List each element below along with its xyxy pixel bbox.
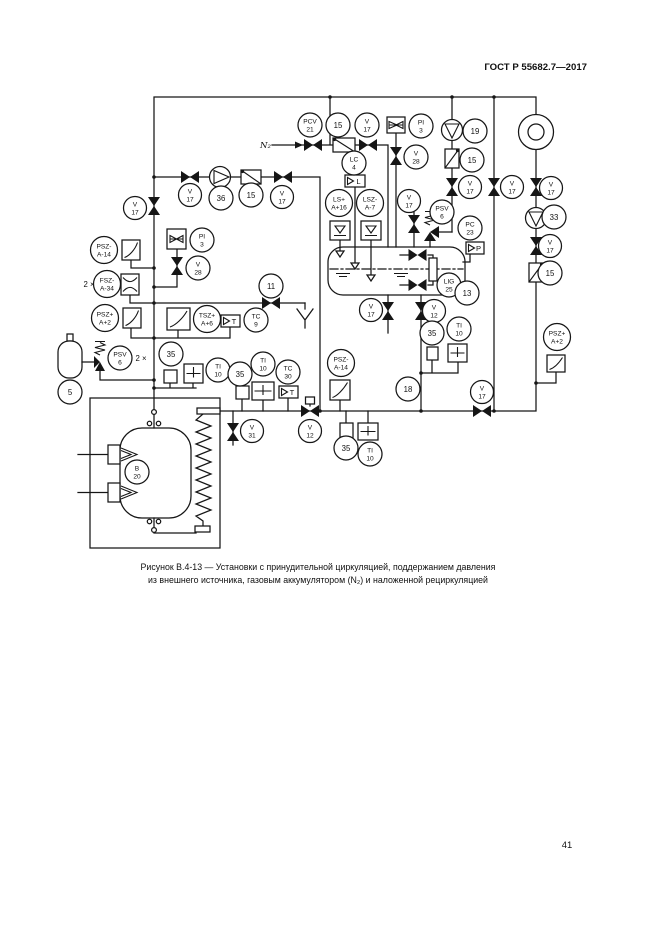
svg-text:9: 9 <box>254 322 258 329</box>
svg-text:TI: TI <box>367 448 373 455</box>
svg-text:PSZ-: PSZ- <box>96 244 111 251</box>
svg-text:V: V <box>407 195 412 202</box>
svg-text:17: 17 <box>363 127 371 134</box>
svg-text:V: V <box>432 305 437 312</box>
svg-text:28: 28 <box>194 270 202 277</box>
svg-text:15: 15 <box>247 191 256 200</box>
svg-text:11: 11 <box>267 282 275 291</box>
svg-text:PSZ+: PSZ+ <box>97 312 114 319</box>
bubble-v12-drain: V12 <box>423 300 446 323</box>
strainer-dot <box>333 138 336 141</box>
bubble-pcv-21: PCV21 <box>298 113 322 137</box>
bubble-psz-a2-left: PSZ+A+2 <box>92 305 119 332</box>
bubble-35-c: 35 <box>420 321 444 345</box>
valve-drum-vent-v17 <box>408 215 420 233</box>
bubble-v31: V31 <box>241 420 264 443</box>
svg-text:10: 10 <box>214 372 222 379</box>
bubble-pi-3-top: PI3 <box>409 114 433 138</box>
svg-text:28: 28 <box>412 159 420 166</box>
svg-text:V: V <box>308 425 313 432</box>
coil-bottom-header <box>195 526 210 532</box>
svg-text:5: 5 <box>68 388 73 397</box>
flange-bolt <box>147 519 151 523</box>
svg-text:V: V <box>188 189 193 196</box>
bubble-18: 18 <box>396 377 420 401</box>
valve-n2-inlet <box>304 139 322 151</box>
bubble-v17-left-riser: V17 <box>124 197 147 220</box>
bubble-v17-n2: V17 <box>355 113 379 137</box>
sensor-35-c <box>427 347 438 360</box>
bubble-v17-pump33: V17 <box>539 235 562 258</box>
n2-flow-arrow <box>295 142 303 149</box>
svg-text:17: 17 <box>186 197 194 204</box>
page-header: ГОСТ Р 55682.7—2017 <box>484 62 587 73</box>
page-number: 41 <box>562 839 572 850</box>
svg-text:13: 13 <box>463 289 472 298</box>
svg-text:17: 17 <box>508 189 516 196</box>
bubble-35-a: 35 <box>159 342 183 366</box>
bubble-lsz-a7: LSZ-A-7 <box>357 190 384 217</box>
svg-text:PSZ+: PSZ+ <box>549 331 566 338</box>
svg-text:36: 36 <box>217 194 226 203</box>
svg-text:PI: PI <box>199 234 205 241</box>
flange-bolt <box>156 519 160 523</box>
temp-display-letter: T <box>232 317 237 326</box>
svg-text:V: V <box>196 262 201 269</box>
valve-blowdown-11 <box>262 297 280 309</box>
heating-coil <box>196 414 211 526</box>
svg-text:V: V <box>414 151 419 158</box>
psv-drum-body <box>424 226 439 241</box>
svg-text:17: 17 <box>547 190 555 197</box>
svg-text:6: 6 <box>118 360 122 367</box>
valve-v28-top <box>390 147 402 165</box>
bubble-36: 36 <box>209 186 233 210</box>
sensor-35-a <box>164 370 177 383</box>
bubble-v17-right: V17 <box>540 177 563 200</box>
bubble-v28-left: V28 <box>186 256 210 280</box>
svg-text:17: 17 <box>466 189 474 196</box>
valve-v12-actuator <box>306 397 315 404</box>
bubble-5: 5 <box>58 380 82 404</box>
bubble-11: 11 <box>259 274 283 298</box>
svg-text:35: 35 <box>167 350 176 359</box>
bubble-v12-control: V12 <box>299 420 322 443</box>
coil-top-header <box>197 408 220 414</box>
valve-n2-outlet <box>359 139 377 151</box>
bubble-v17-branch1: V17 <box>179 184 202 207</box>
bubble-psv6-drum: PSV6 <box>430 200 454 224</box>
strainer-dot <box>456 149 459 152</box>
bubble-ti10-d: TI10 <box>358 442 382 466</box>
svg-text:17: 17 <box>367 312 375 319</box>
svg-text:PSV: PSV <box>435 206 449 213</box>
svg-text:21: 21 <box>306 127 314 134</box>
svg-text:17: 17 <box>278 199 286 206</box>
svg-text:3: 3 <box>419 128 423 135</box>
flange-joint <box>152 528 157 533</box>
valve-control-v12 <box>301 405 319 417</box>
svg-text:TC: TC <box>284 366 293 373</box>
bubble-15-feed: 15 <box>239 183 263 207</box>
svg-text:25: 25 <box>445 287 453 294</box>
valve-feed-branch-2 <box>274 171 292 183</box>
bubble-ti10-a: TI10 <box>206 358 230 382</box>
bubble-v17-mid: V17 <box>501 176 524 199</box>
level-gauge-glass <box>429 258 437 281</box>
svg-text:A-14: A-14 <box>334 365 348 372</box>
level-transmitter-1 <box>330 221 350 240</box>
bubble-tsz-a6: TSZ+A+6 <box>194 306 221 333</box>
svg-text:18: 18 <box>404 385 413 394</box>
bubble-33: 33 <box>542 205 566 229</box>
svg-text:23: 23 <box>466 230 474 237</box>
svg-text:A-7: A-7 <box>365 205 376 212</box>
bubble-ls-a16: LS+A+16 <box>326 190 353 217</box>
expansion-vessel-neck <box>67 334 73 341</box>
svg-text:V: V <box>250 425 255 432</box>
bubble-35-b: 35 <box>228 362 252 386</box>
svg-text:17: 17 <box>405 203 413 210</box>
bubble-v17-bottom: V17 <box>471 381 494 404</box>
strainer-dot <box>241 170 244 173</box>
sensor-35-b <box>236 386 249 399</box>
svg-text:3: 3 <box>200 242 204 249</box>
bubble-35-d: 35 <box>334 436 358 460</box>
bubble-psz-a14-left: PSZ-A-14 <box>91 237 118 264</box>
svg-text:20: 20 <box>133 474 141 481</box>
bubble-pc-23: PC23 <box>458 216 482 240</box>
svg-text:10: 10 <box>259 366 267 373</box>
svg-text:PSZ-: PSZ- <box>333 357 348 364</box>
bubble-fsz-a34: FSZ-A-34 <box>94 271 121 298</box>
level-transmitter-2 <box>361 221 381 240</box>
fsz-a34-element <box>121 274 139 295</box>
svg-text:A+2: A+2 <box>551 339 563 346</box>
bubble-tc-30: TC30 <box>276 360 300 384</box>
bubble-psz-a14-right: PSZ-A-14 <box>328 350 355 377</box>
svg-text:10: 10 <box>455 331 463 338</box>
svg-text:FSZ-: FSZ- <box>100 278 115 285</box>
svg-text:V: V <box>548 240 553 247</box>
psv-quantity-label: 2 × <box>135 354 147 363</box>
figure-caption-line1: Рисунок В.4-13 — Установки с принудитель… <box>141 562 496 572</box>
valve-left-riser-v17 <box>148 197 160 215</box>
bubble-13: 13 <box>455 281 479 305</box>
level-display-letter: L <box>356 177 360 186</box>
valve-drain-v17 <box>382 302 394 320</box>
svg-text:15: 15 <box>334 121 343 130</box>
temp-display-letter: T <box>290 388 295 397</box>
svg-text:17: 17 <box>478 394 486 401</box>
svg-text:B: B <box>135 466 140 473</box>
svg-text:PSV: PSV <box>113 352 127 359</box>
valve-feed-branch-1 <box>181 171 199 183</box>
bubble-ti10-b: TI10 <box>251 352 275 376</box>
svg-text:15: 15 <box>546 269 555 278</box>
svg-text:V: V <box>365 119 370 126</box>
svg-text:A+16: A+16 <box>331 205 347 212</box>
svg-text:PI: PI <box>418 120 424 127</box>
bubble-b-20: B20 <box>125 460 149 484</box>
svg-text:V: V <box>280 191 285 198</box>
svg-text:12: 12 <box>306 433 314 440</box>
svg-text:12: 12 <box>430 313 438 320</box>
svg-text:TI: TI <box>456 323 462 330</box>
bubble-v17-branch2: V17 <box>271 186 294 209</box>
psv-left-body <box>94 356 105 371</box>
svg-text:V: V <box>549 182 554 189</box>
pressure-display-letter: P <box>476 244 481 253</box>
svg-text:35: 35 <box>236 370 245 379</box>
document-page: ГОСТ Р 55682.7—2017 Рисунок В.4-13 — Уст… <box>0 0 661 935</box>
svg-text:TSZ+: TSZ+ <box>199 313 215 320</box>
psv-left-spring <box>95 342 105 356</box>
svg-text:TI: TI <box>260 358 266 365</box>
burner-upper <box>108 445 120 464</box>
svg-text:19: 19 <box>471 127 480 136</box>
expansion-vessel <box>58 341 82 378</box>
svg-text:PCV: PCV <box>303 119 317 126</box>
svg-text:10: 10 <box>366 456 374 463</box>
svg-text:35: 35 <box>342 444 351 453</box>
bubble-v28-top: V28 <box>404 145 428 169</box>
svg-text:LS+: LS+ <box>333 197 345 204</box>
figure-caption-line2: из внешнего источника, газовым аккумулят… <box>148 575 488 585</box>
bubble-v17-pump19: V17 <box>459 176 482 199</box>
bubble-15-pump33: 15 <box>538 261 562 285</box>
valve-v28-left <box>171 257 183 275</box>
bubble-15-n2: 15 <box>326 113 350 137</box>
svg-text:A+6: A+6 <box>201 321 213 328</box>
svg-text:V: V <box>480 386 485 393</box>
svg-text:35: 35 <box>428 329 437 338</box>
svg-text:TC: TC <box>252 314 261 321</box>
svg-text:17: 17 <box>546 248 554 255</box>
svg-text:A+2: A+2 <box>99 320 111 327</box>
svg-text:A-34: A-34 <box>100 286 114 293</box>
vent-funnel <box>297 303 313 328</box>
bubble-19: 19 <box>463 119 487 143</box>
valve-mid-v17 <box>488 178 500 196</box>
svg-text:V: V <box>369 304 374 311</box>
svg-text:LC: LC <box>350 157 359 164</box>
flange-bolt <box>156 421 160 425</box>
svg-text:17: 17 <box>131 210 139 217</box>
pump-36-body <box>210 167 231 188</box>
flange-bolt <box>147 421 151 425</box>
svg-text:TI: TI <box>215 364 221 371</box>
svg-text:A-14: A-14 <box>97 252 111 259</box>
valve-v31 <box>227 423 239 441</box>
bubble-psz-a2-right: PSZ+A+2 <box>544 324 571 351</box>
bubble-v17-drain: V17 <box>360 299 383 322</box>
valve-bottom-v17 <box>473 405 491 417</box>
bubble-v17-drum-vent: V17 <box>398 190 421 213</box>
bubble-pi-3-left: PI3 <box>190 228 214 252</box>
bubble-lc-4: LC4 <box>342 151 366 175</box>
pid-diagram: ГОСТ Р 55682.7—2017 Рисунок В.4-13 — Уст… <box>0 0 661 935</box>
n2-feed-label: N₂ <box>259 141 272 151</box>
svg-text:15: 15 <box>468 156 477 165</box>
bubble-ti10-c: TI10 <box>447 317 471 341</box>
svg-text:6: 6 <box>440 214 444 221</box>
flange-joint <box>152 410 157 415</box>
bubble-15-pump19: 15 <box>460 148 484 172</box>
svg-text:LSZ-: LSZ- <box>363 197 377 204</box>
svg-text:30: 30 <box>284 374 292 381</box>
svg-text:LIG: LIG <box>444 279 455 286</box>
burner-lower <box>108 483 120 502</box>
svg-text:V: V <box>133 202 138 209</box>
bubble-psv6-left: PSV6 <box>108 346 132 370</box>
svg-text:33: 33 <box>550 213 559 222</box>
svg-text:V: V <box>510 181 515 188</box>
svg-text:V: V <box>468 181 473 188</box>
valve-pump19-v17 <box>446 178 458 196</box>
svg-text:31: 31 <box>248 433 256 440</box>
bubble-tc-9: TC9 <box>244 308 268 332</box>
svg-text:4: 4 <box>352 165 356 172</box>
svg-text:PC: PC <box>465 222 474 229</box>
heat-consumer-inner <box>528 124 544 140</box>
